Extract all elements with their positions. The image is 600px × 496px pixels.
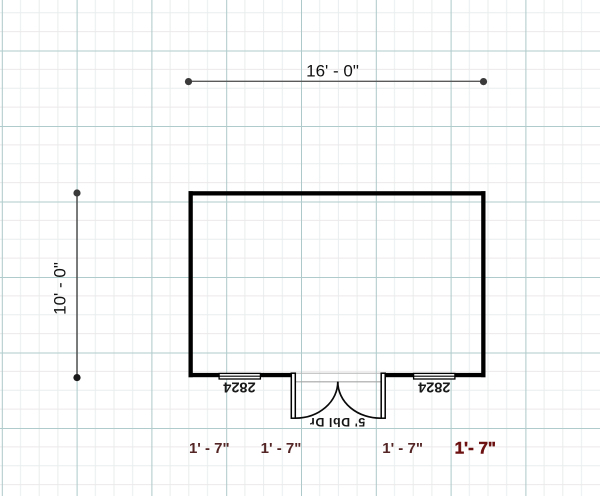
svg-text:5' Dbl Dr: 5' Dbl Dr	[309, 415, 365, 429]
svg-text:16' - 0": 16' - 0"	[306, 61, 359, 80]
svg-text:1'- 7": 1'- 7"	[455, 439, 496, 458]
svg-text:10' - 0": 10' - 0"	[51, 262, 70, 315]
svg-text:2824: 2824	[418, 378, 450, 394]
svg-text:2824: 2824	[223, 378, 255, 394]
svg-text:1' - 7": 1' - 7"	[382, 440, 423, 457]
svg-text:1' - 7": 1' - 7"	[261, 440, 302, 457]
svg-text:1' - 7": 1' - 7"	[189, 440, 230, 457]
